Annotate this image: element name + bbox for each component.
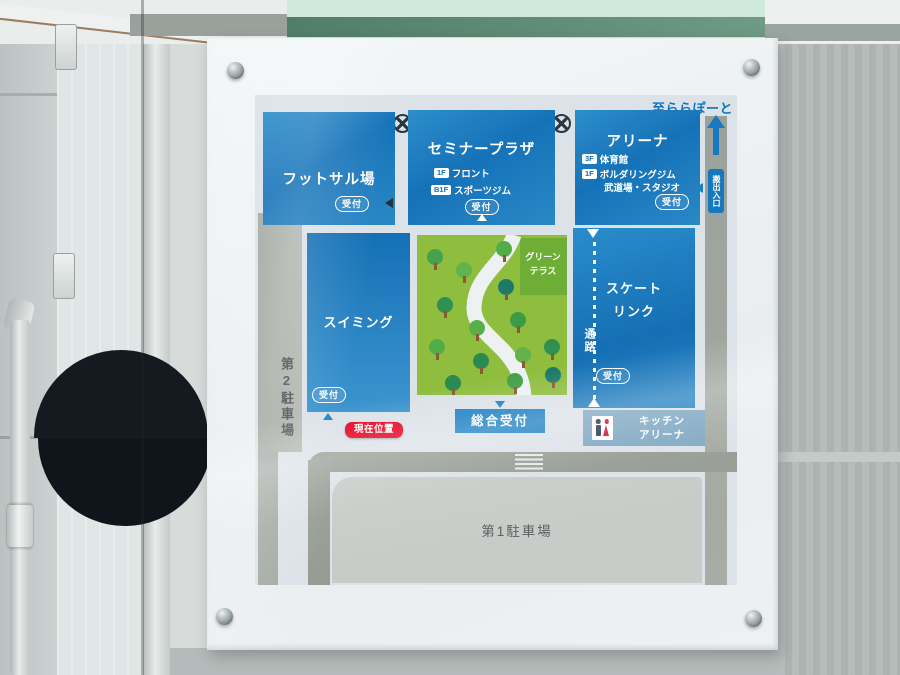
wall-bottom <box>170 648 778 675</box>
green-terrace-area: グリーン テラス <box>417 235 567 395</box>
facility-seminar-plaza: セミナープラザ 1F フロント B1F スポーツジム 受付 <box>408 110 555 225</box>
tree-icon <box>515 347 531 369</box>
swimming-title: スイミング <box>307 312 410 331</box>
wall-stripe-gray <box>765 24 900 41</box>
woman-pictogram <box>603 419 610 436</box>
floor-row: B1F スポーツジム <box>431 183 511 197</box>
parking-lot-2-area <box>258 452 278 585</box>
skate-rink-title: スケート リンク <box>573 278 695 324</box>
wall-pillar <box>143 0 170 675</box>
up-arrow-icon <box>477 214 487 221</box>
facility-swimming: スイミング 受付 <box>307 233 410 412</box>
drain-pipe <box>10 320 30 675</box>
screw-icon <box>745 610 762 627</box>
door-hinge <box>53 253 75 299</box>
tree-icon <box>498 279 514 301</box>
road-vertical <box>308 460 330 585</box>
facility-skate-rink: スケート リンク 通路 受付 <box>573 228 695 408</box>
up-arrow-icon <box>713 127 719 155</box>
parking-lot-1-area: 第1駐車場 <box>332 477 702 583</box>
crosswalk-icon <box>515 454 543 470</box>
screw-icon <box>227 62 244 79</box>
general-reception-label: 総合受付 <box>455 409 545 433</box>
wall-seam <box>778 452 900 462</box>
tree-icon <box>544 339 560 361</box>
seminar-plaza-title: セミナープラザ <box>408 138 555 159</box>
tree-icon <box>469 320 485 342</box>
parking-lot-1-label: 第1駐車場 <box>481 520 553 540</box>
reception-pill: 受付 <box>464 199 498 215</box>
floor-badge: 3F <box>582 154 597 164</box>
futsal-title: フットサル場 <box>263 168 395 189</box>
tree-icon <box>427 249 443 271</box>
tree-icon <box>496 241 512 263</box>
green-terrace-label: グリーン テラス <box>521 250 565 279</box>
facility-map: 第1駐車場 第2駐車場 至ららぽーと 搬出入口 フットサル場 受付 セミナープラ… <box>255 95 737 585</box>
man-pictogram <box>595 419 602 436</box>
sign-board: 第1駐車場 第2駐車場 至ららぽーと 搬出入口 フットサル場 受付 セミナープラ… <box>207 38 778 650</box>
floor-badge: B1F <box>431 185 451 195</box>
floor-badge: 1F <box>582 169 597 179</box>
facility-kitchen-arena: キッチン アリーナ <box>583 410 705 446</box>
down-arrow-icon <box>587 229 599 238</box>
tree-icon <box>510 312 526 334</box>
reception-pill: 受付 <box>655 194 689 210</box>
floor-name: 武道場・スタジオ <box>604 180 680 194</box>
wall-stripe-gray <box>130 14 287 36</box>
wall-right <box>778 0 900 675</box>
tree-icon <box>437 297 453 319</box>
current-location-badge: 現在位置 <box>345 422 403 438</box>
floor-name: スポーツジム <box>454 183 511 197</box>
floor-row: 1F フロント <box>434 166 490 180</box>
floor-name: フロント <box>452 166 490 180</box>
screw-icon <box>216 608 233 625</box>
floor-badge: 1F <box>434 168 449 178</box>
tree-icon <box>507 373 523 395</box>
reception-pill: 受付 <box>335 196 369 212</box>
down-arrow-icon <box>495 401 505 408</box>
reception-pill: 受付 <box>596 368 630 384</box>
service-entrance-label: 搬出入口 <box>708 169 724 213</box>
restroom-icon <box>592 416 613 440</box>
screw-icon <box>743 59 760 76</box>
tree-icon <box>545 367 561 389</box>
tree-icon <box>429 339 445 361</box>
door-hinge <box>55 24 77 70</box>
wall-seam <box>0 93 57 96</box>
arena-title: アリーナ <box>575 130 700 151</box>
tree-icon <box>473 353 489 375</box>
up-arrow-icon <box>323 413 333 420</box>
tree-icon <box>445 375 461 395</box>
left-arrow-icon <box>385 198 393 208</box>
parking-lot-2-label: 第2駐車場 <box>277 357 296 439</box>
floor-row: 3F 体育館 <box>582 152 628 166</box>
pipe-coupling <box>7 505 33 547</box>
reception-pill: 受付 <box>312 387 346 403</box>
floor-name: ボルダリングジム <box>600 167 676 181</box>
wall-outer <box>170 0 207 675</box>
floor-name: 体育館 <box>600 152 629 166</box>
wall-stripe-green <box>287 17 765 37</box>
tree-icon <box>456 262 472 284</box>
up-arrow-icon <box>588 398 600 407</box>
photo-of-facility-map-sign: 第1駐車場 第2駐車場 至ららぽーと 搬出入口 フットサル場 受付 セミナープラ… <box>0 0 900 675</box>
floor-row: 1F ボルダリングジム <box>582 167 676 181</box>
panel-gap-line <box>141 0 144 675</box>
wall-door-panel <box>57 0 143 675</box>
kitchen-arena-label: キッチン アリーナ <box>623 414 701 442</box>
panel-seam-line <box>0 436 207 439</box>
facility-arena: アリーナ 3F 体育館 1F ボルダリングジム 武道場・スタジオ 受付 <box>575 110 700 225</box>
passage-label: 通路 <box>581 328 597 354</box>
facility-futsal: フットサル場 受付 <box>263 112 395 225</box>
